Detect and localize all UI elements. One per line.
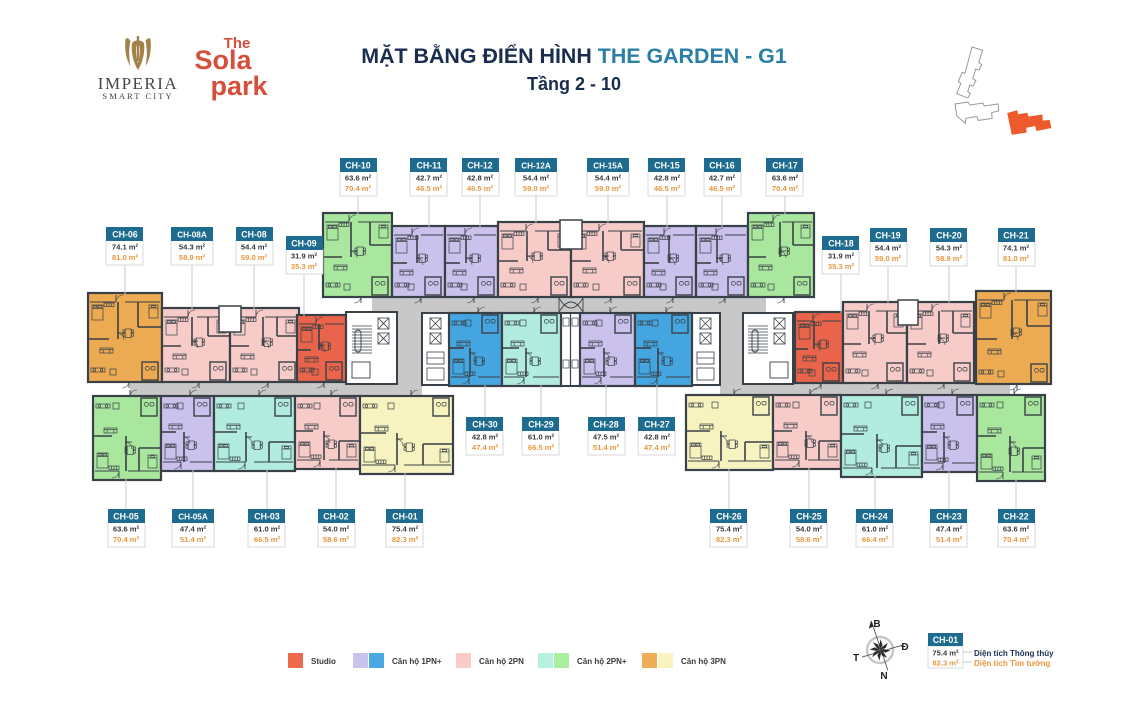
svg-text:CH-10: CH-10 <box>345 161 371 171</box>
svg-text:CH-21: CH-21 <box>1003 231 1029 241</box>
svg-text:82.3 m²: 82.3 m² <box>392 535 419 544</box>
svg-text:58.6 m²: 58.6 m² <box>796 535 823 544</box>
svg-text:59.0 m²: 59.0 m² <box>523 184 550 193</box>
svg-text:CH-08A: CH-08A <box>177 231 207 240</box>
svg-text:82.3 m²: 82.3 m² <box>932 659 959 668</box>
svg-text:66.5 m²: 66.5 m² <box>254 535 281 544</box>
svg-text:N: N <box>880 671 887 682</box>
svg-text:42.7 m²: 42.7 m² <box>709 174 736 183</box>
svg-text:CH-01: CH-01 <box>392 512 418 522</box>
svg-text:58.6 m²: 58.6 m² <box>323 535 350 544</box>
svg-text:54.4 m²: 54.4 m² <box>241 243 268 252</box>
svg-text:Diện tích Tìm tường: Diện tích Tìm tường <box>974 659 1050 668</box>
svg-text:CH-29: CH-29 <box>528 420 554 430</box>
svg-text:Tầng 2 - 10: Tầng 2 - 10 <box>527 74 621 94</box>
svg-text:46.5 m²: 46.5 m² <box>654 184 681 193</box>
svg-text:CH-27: CH-27 <box>644 420 670 430</box>
svg-text:54.3 m²: 54.3 m² <box>936 244 963 253</box>
svg-text:CH-15A: CH-15A <box>593 162 623 171</box>
svg-text:70.4 m²: 70.4 m² <box>345 184 372 193</box>
svg-text:47.4 m²: 47.4 m² <box>644 443 671 452</box>
svg-text:Studio: Studio <box>311 657 336 666</box>
svg-text:70.4 m²: 70.4 m² <box>772 184 799 193</box>
svg-text:42.8 m²: 42.8 m² <box>472 433 499 442</box>
svg-text:63.6 m²: 63.6 m² <box>113 525 140 534</box>
svg-text:CH-20: CH-20 <box>936 231 962 241</box>
svg-text:CH-12: CH-12 <box>467 161 493 171</box>
svg-text:Đ: Đ <box>901 642 908 653</box>
svg-text:CH-24: CH-24 <box>862 512 888 522</box>
svg-text:CH-22: CH-22 <box>1003 512 1029 522</box>
svg-text:46.5 m²: 46.5 m² <box>416 184 443 193</box>
svg-text:42.8 m²: 42.8 m² <box>644 433 671 442</box>
svg-text:54.4 m²: 54.4 m² <box>595 174 622 183</box>
svg-text:54.4 m²: 54.4 m² <box>875 244 902 253</box>
svg-text:42.8 m²: 42.8 m² <box>467 174 494 183</box>
svg-text:CH-11: CH-11 <box>417 161 442 171</box>
svg-text:CH-05A: CH-05A <box>178 513 208 522</box>
svg-text:CH-06: CH-06 <box>112 230 138 240</box>
svg-text:70.4 m²: 70.4 m² <box>1003 535 1030 544</box>
svg-text:61.0 m²: 61.0 m² <box>528 433 555 442</box>
svg-text:51.4 m²: 51.4 m² <box>180 535 207 544</box>
svg-text:59.0 m²: 59.0 m² <box>875 254 902 263</box>
svg-text:31.9 m²: 31.9 m² <box>828 252 855 261</box>
svg-text:Căn hộ 3PN: Căn hộ 3PN <box>681 657 726 666</box>
svg-text:51.4 m²: 51.4 m² <box>936 535 963 544</box>
svg-text:70.4 m²: 70.4 m² <box>113 535 140 544</box>
svg-text:CH-12A: CH-12A <box>521 162 551 171</box>
svg-text:59.0 m²: 59.0 m² <box>595 184 622 193</box>
svg-text:CH-25: CH-25 <box>796 512 822 522</box>
svg-text:B: B <box>873 619 880 630</box>
svg-text:63.6 m²: 63.6 m² <box>345 174 372 183</box>
svg-text:CH-01: CH-01 <box>933 635 959 645</box>
svg-text:46.5 m²: 46.5 m² <box>709 184 736 193</box>
svg-text:63.6 m²: 63.6 m² <box>772 174 799 183</box>
svg-text:CH-15: CH-15 <box>654 161 680 171</box>
svg-text:61.0 m²: 61.0 m² <box>254 525 281 534</box>
svg-text:35.3 m²: 35.3 m² <box>828 262 855 271</box>
svg-text:82.3 m²: 82.3 m² <box>716 535 743 544</box>
svg-text:74.1 m²: 74.1 m² <box>112 243 139 252</box>
svg-text:54.4 m²: 54.4 m² <box>523 174 550 183</box>
svg-text:47.5 m²: 47.5 m² <box>593 433 620 442</box>
svg-text:CH-16: CH-16 <box>709 161 735 171</box>
svg-text:CH-17: CH-17 <box>772 161 798 171</box>
svg-text:CH-08: CH-08 <box>241 230 267 240</box>
svg-text:CH-05: CH-05 <box>113 512 139 522</box>
svg-text:Căn hộ 1PN+: Căn hộ 1PN+ <box>392 657 442 666</box>
svg-text:59.0 m²: 59.0 m² <box>241 253 268 262</box>
svg-text:66.4 m²: 66.4 m² <box>862 535 889 544</box>
svg-text:54.0 m²: 54.0 m² <box>796 525 823 534</box>
svg-text:CH-18: CH-18 <box>828 239 854 249</box>
svg-text:42.8 m²: 42.8 m² <box>654 174 681 183</box>
svg-text:75.4 m²: 75.4 m² <box>932 649 959 658</box>
svg-text:46.5 m²: 46.5 m² <box>467 184 494 193</box>
svg-text:Diện tích Thông thủy: Diện tích Thông thủy <box>974 649 1054 658</box>
svg-text:Căn hộ 2PN: Căn hộ 2PN <box>479 657 524 666</box>
svg-text:SMART CITY: SMART CITY <box>102 91 173 101</box>
svg-text:35.3 m²: 35.3 m² <box>291 262 318 271</box>
svg-text:42.7 m²: 42.7 m² <box>416 174 443 183</box>
svg-text:CH-09: CH-09 <box>291 239 317 249</box>
svg-text:Căn hộ 2PN+: Căn hộ 2PN+ <box>577 657 627 666</box>
svg-text:47.4 m²: 47.4 m² <box>180 525 207 534</box>
svg-text:63.6 m²: 63.6 m² <box>1003 525 1030 534</box>
svg-text:47.4 m²: 47.4 m² <box>936 525 963 534</box>
svg-text:CH-23: CH-23 <box>936 512 962 522</box>
svg-text:81.0 m²: 81.0 m² <box>1003 254 1030 263</box>
svg-text:61.0 m²: 61.0 m² <box>862 525 889 534</box>
svg-text:75.4 m²: 75.4 m² <box>716 525 743 534</box>
svg-text:CH-02: CH-02 <box>323 512 349 522</box>
svg-text:47.4 m²: 47.4 m² <box>472 443 499 452</box>
svg-text:park: park <box>210 71 268 101</box>
svg-text:54.3 m²: 54.3 m² <box>179 243 206 252</box>
svg-text:51.4 m²: 51.4 m² <box>593 443 620 452</box>
svg-text:66.5 m²: 66.5 m² <box>528 443 555 452</box>
svg-text:CH-03: CH-03 <box>254 512 280 522</box>
svg-text:58.9 m²: 58.9 m² <box>179 253 206 262</box>
svg-text:CH-19: CH-19 <box>875 231 901 241</box>
svg-text:CH-28: CH-28 <box>593 420 619 430</box>
svg-text:74.1 m²: 74.1 m² <box>1003 244 1030 253</box>
svg-text:31.9 m²: 31.9 m² <box>291 252 318 261</box>
svg-text:54.0 m²: 54.0 m² <box>323 525 350 534</box>
svg-text:CH-26: CH-26 <box>716 512 742 522</box>
svg-text:T: T <box>853 653 859 664</box>
svg-text:CH-30: CH-30 <box>472 420 498 430</box>
svg-text:MẶT BẰNG ĐIỂN HÌNH THE GARDEN: MẶT BẰNG ĐIỂN HÌNH THE GARDEN - G1 <box>361 43 787 68</box>
svg-text:58.9 m²: 58.9 m² <box>936 254 963 263</box>
svg-text:81.0 m²: 81.0 m² <box>112 253 139 262</box>
svg-text:75.4 m²: 75.4 m² <box>392 525 419 534</box>
